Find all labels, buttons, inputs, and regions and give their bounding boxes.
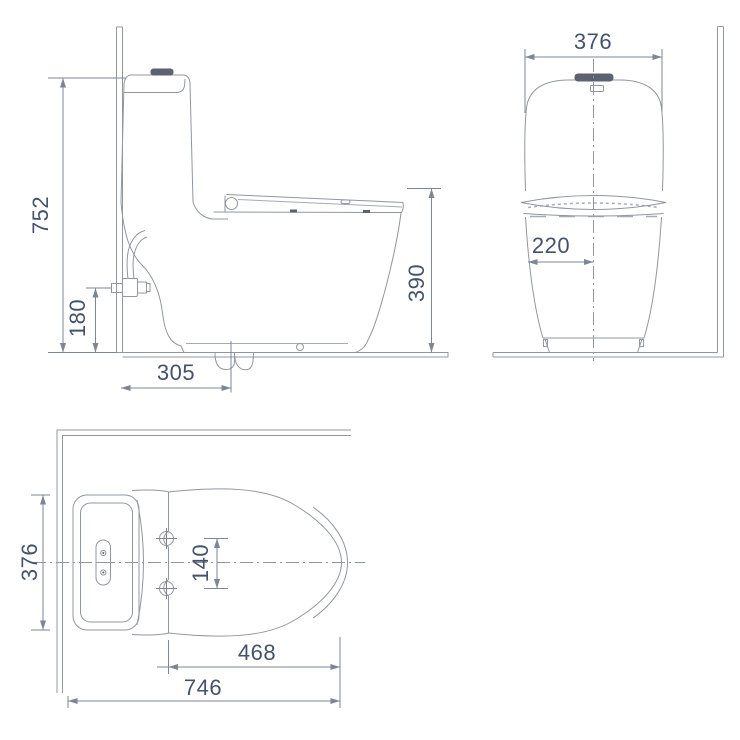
side-view [48,27,448,393]
dim-label-hinge-spacing: 140 [190,544,212,582]
dim-label-inlet-height: 180 [67,299,89,337]
tank-outline [121,75,193,202]
dim-label-overall-height: 752 [30,196,52,234]
dim-label-outlet-offset: 305 [157,362,195,384]
drawing-linework [0,0,740,740]
dim-label-seat-length: 468 [238,642,276,664]
floor [117,353,449,358]
front-view [493,27,724,362]
seat-lid-side [214,195,404,214]
wall [718,27,724,358]
seat-hinge-holes [156,528,177,599]
technical-drawing-toilet-dimensions: 752 180 305 390 376 220 376 140 468 746 [0,0,740,740]
seat-hinge-side [226,198,238,210]
dim-label-total-depth: 746 [184,677,222,699]
supply-hose [127,231,147,280]
dim-label-top-width: 376 [19,543,41,581]
flush-button-side [151,69,174,76]
logo-mark [591,86,604,92]
dim-label-rim-height: 390 [406,264,428,302]
dim-label-center-offset: 220 [532,235,570,257]
water-supply-valve [112,279,151,297]
outlet-trap [215,353,254,370]
floor [493,353,724,358]
toilet-body-side [121,202,401,353]
dim-label-front-width: 376 [574,31,612,53]
